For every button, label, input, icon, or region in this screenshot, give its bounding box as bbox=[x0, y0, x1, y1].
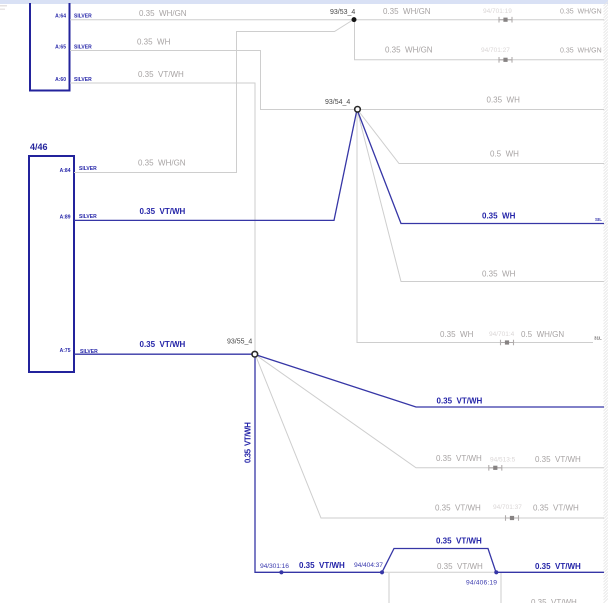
svg-text:0.35 WH: 0.35 WH bbox=[137, 38, 171, 47]
svg-text:A:75: A:75 bbox=[60, 348, 71, 354]
svg-text:0.35 VT/WH: 0.35 VT/WH bbox=[243, 422, 252, 463]
svg-text:A:64: A:64 bbox=[55, 14, 66, 20]
svg-text:0.35 VT/WH: 0.35 VT/WH bbox=[436, 537, 482, 546]
svg-text:93/54_4: 93/54_4 bbox=[325, 99, 350, 106]
svg-text:0.35 WH/GN: 0.35 WH/GN bbox=[138, 159, 186, 168]
svg-text:0.35 VT/WH: 0.35 VT/WH bbox=[435, 504, 481, 513]
svg-text:0.35 WH/GN: 0.35 WH/GN bbox=[385, 46, 433, 55]
svg-text:0.35 WH: 0.35 WH bbox=[482, 212, 516, 221]
svg-text:94/701:27: 94/701:27 bbox=[481, 47, 510, 54]
svg-text:0.35 WH: 0.35 WH bbox=[440, 330, 474, 339]
svg-text:0.35 VT/WH: 0.35 VT/WH bbox=[531, 598, 577, 603]
svg-text:0.35 WH/GN: 0.35 WH/GN bbox=[383, 7, 431, 16]
svg-text:0.35 VT/WH: 0.35 VT/WH bbox=[437, 397, 483, 406]
svg-text:0.35 WH: 0.35 WH bbox=[487, 96, 521, 105]
svg-text:0.35 VT/WH: 0.35 VT/WH bbox=[535, 562, 581, 571]
svg-text:0.35 VT/WH: 0.35 VT/WH bbox=[138, 70, 184, 79]
svg-text:SILVER: SILVER bbox=[80, 349, 98, 355]
svg-text:0.5 WH/GN: 0.5 WH/GN bbox=[521, 330, 564, 339]
svg-text:SIL: SIL bbox=[595, 217, 602, 222]
svg-text:0.35 VT/WH: 0.35 VT/WH bbox=[140, 340, 186, 349]
svg-text:94/301:16: 94/301:16 bbox=[260, 563, 289, 570]
svg-text:0.35 VT/WH: 0.35 VT/WH bbox=[533, 504, 579, 513]
svg-text:A:84: A:84 bbox=[60, 168, 71, 174]
svg-text:94/701:4: 94/701:4 bbox=[489, 331, 515, 338]
svg-text:0.35 VT/WH: 0.35 VT/WH bbox=[436, 454, 482, 463]
svg-text:0.35 VT/WH: 0.35 VT/WH bbox=[535, 455, 581, 464]
svg-text:93/55_4: 93/55_4 bbox=[227, 339, 252, 346]
svg-text:94/513:5: 94/513:5 bbox=[490, 457, 516, 464]
svg-text:A:65: A:65 bbox=[55, 45, 66, 51]
svg-text:4/46: 4/46 bbox=[30, 142, 48, 152]
svg-text:94/406:19: 94/406:19 bbox=[466, 580, 497, 587]
svg-text:SILVER: SILVER bbox=[74, 44, 92, 50]
svg-text:94/404:37: 94/404:37 bbox=[354, 562, 383, 569]
svg-text:94/701:37: 94/701:37 bbox=[493, 504, 522, 511]
svg-text:31L: 31L bbox=[594, 336, 602, 341]
svg-text:0.35 VT/WH: 0.35 VT/WH bbox=[437, 562, 483, 571]
svg-text:0.35 VT/WH: 0.35 VT/WH bbox=[299, 561, 345, 570]
svg-text:0.35 WH/GN: 0.35 WH/GN bbox=[560, 48, 602, 55]
svg-text:SILVER: SILVER bbox=[79, 214, 97, 220]
svg-text:0.35 WH/GN: 0.35 WH/GN bbox=[139, 9, 187, 18]
svg-text:94/701:19: 94/701:19 bbox=[483, 8, 512, 15]
svg-text:SILVER: SILVER bbox=[74, 77, 92, 83]
svg-text:0.35 VT/WH: 0.35 VT/WH bbox=[140, 207, 186, 216]
svg-text:A:60: A:60 bbox=[55, 77, 66, 83]
svg-text:SILVER: SILVER bbox=[74, 13, 92, 19]
svg-text:0.35 WH/GN: 0.35 WH/GN bbox=[560, 9, 602, 16]
svg-text:0.35 WH: 0.35 WH bbox=[482, 270, 516, 279]
svg-text:0.5 WH: 0.5 WH bbox=[490, 150, 519, 159]
svg-text:A:89: A:89 bbox=[60, 214, 71, 220]
svg-text:SILVER: SILVER bbox=[79, 166, 97, 172]
svg-text:93/53_4: 93/53_4 bbox=[330, 9, 355, 16]
